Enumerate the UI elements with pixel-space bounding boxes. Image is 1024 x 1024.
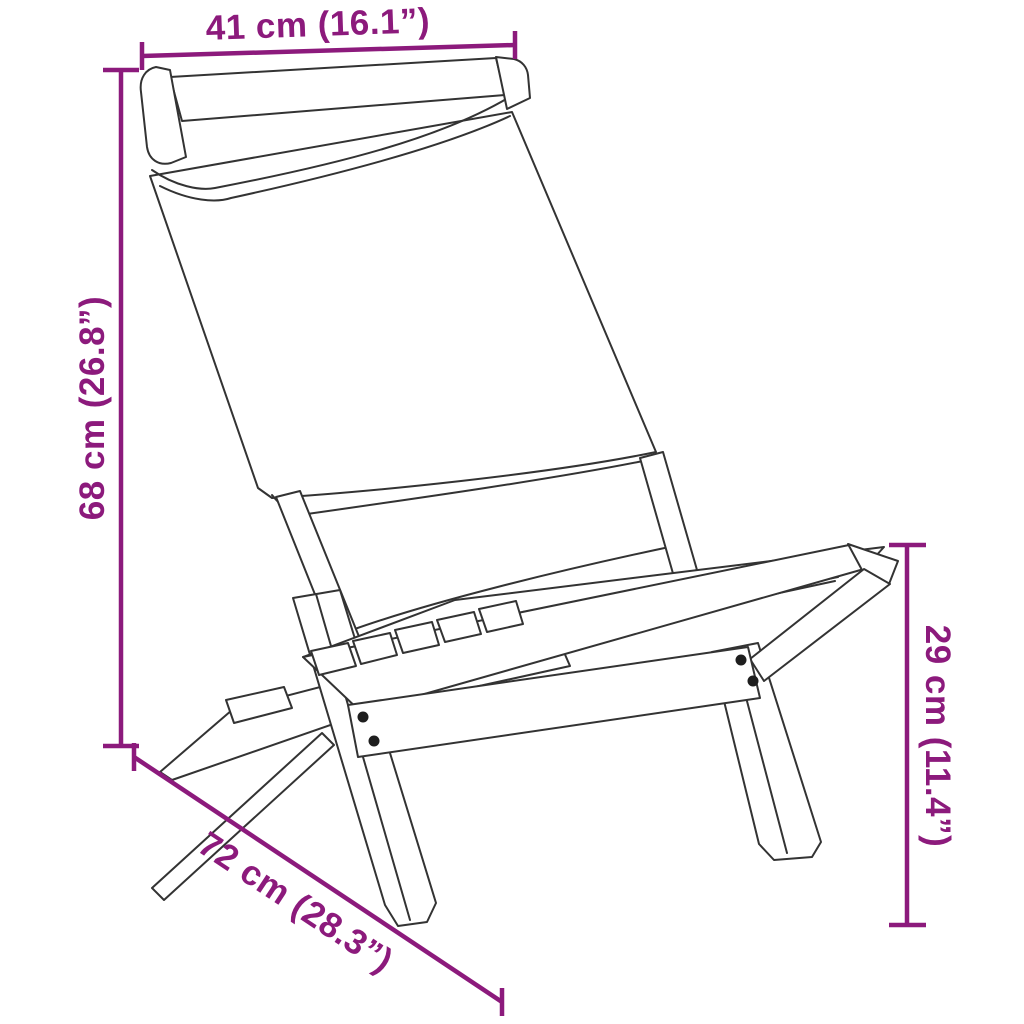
dimension-left-height: 68 cm (26.8”) (73, 70, 139, 746)
backrest-fabric-panel (150, 112, 656, 498)
dimension-right-seat-height: 29 cm (11.4”) (889, 545, 957, 925)
top-rail-bar (170, 58, 505, 121)
screw-icon (369, 736, 380, 747)
dimension-line (134, 757, 502, 1002)
dimension-diagram: 41 cm (16.1”) 68 cm (26.8”) 72 cm (28.3”… (0, 0, 1024, 1024)
dimension-bottom-depth: 72 cm (28.3”) (134, 743, 502, 1016)
dimension-label-seat-height: 29 cm (11.4”) (918, 625, 957, 847)
screw-icon (736, 655, 747, 666)
dimension-label-width: 41 cm (16.1”) (205, 1, 431, 48)
dimension-line (142, 45, 515, 56)
screw-icon (358, 712, 369, 723)
chair-drawing (141, 57, 898, 926)
dimension-label-height: 68 cm (26.8”) (73, 296, 112, 520)
screw-icon (748, 676, 759, 687)
